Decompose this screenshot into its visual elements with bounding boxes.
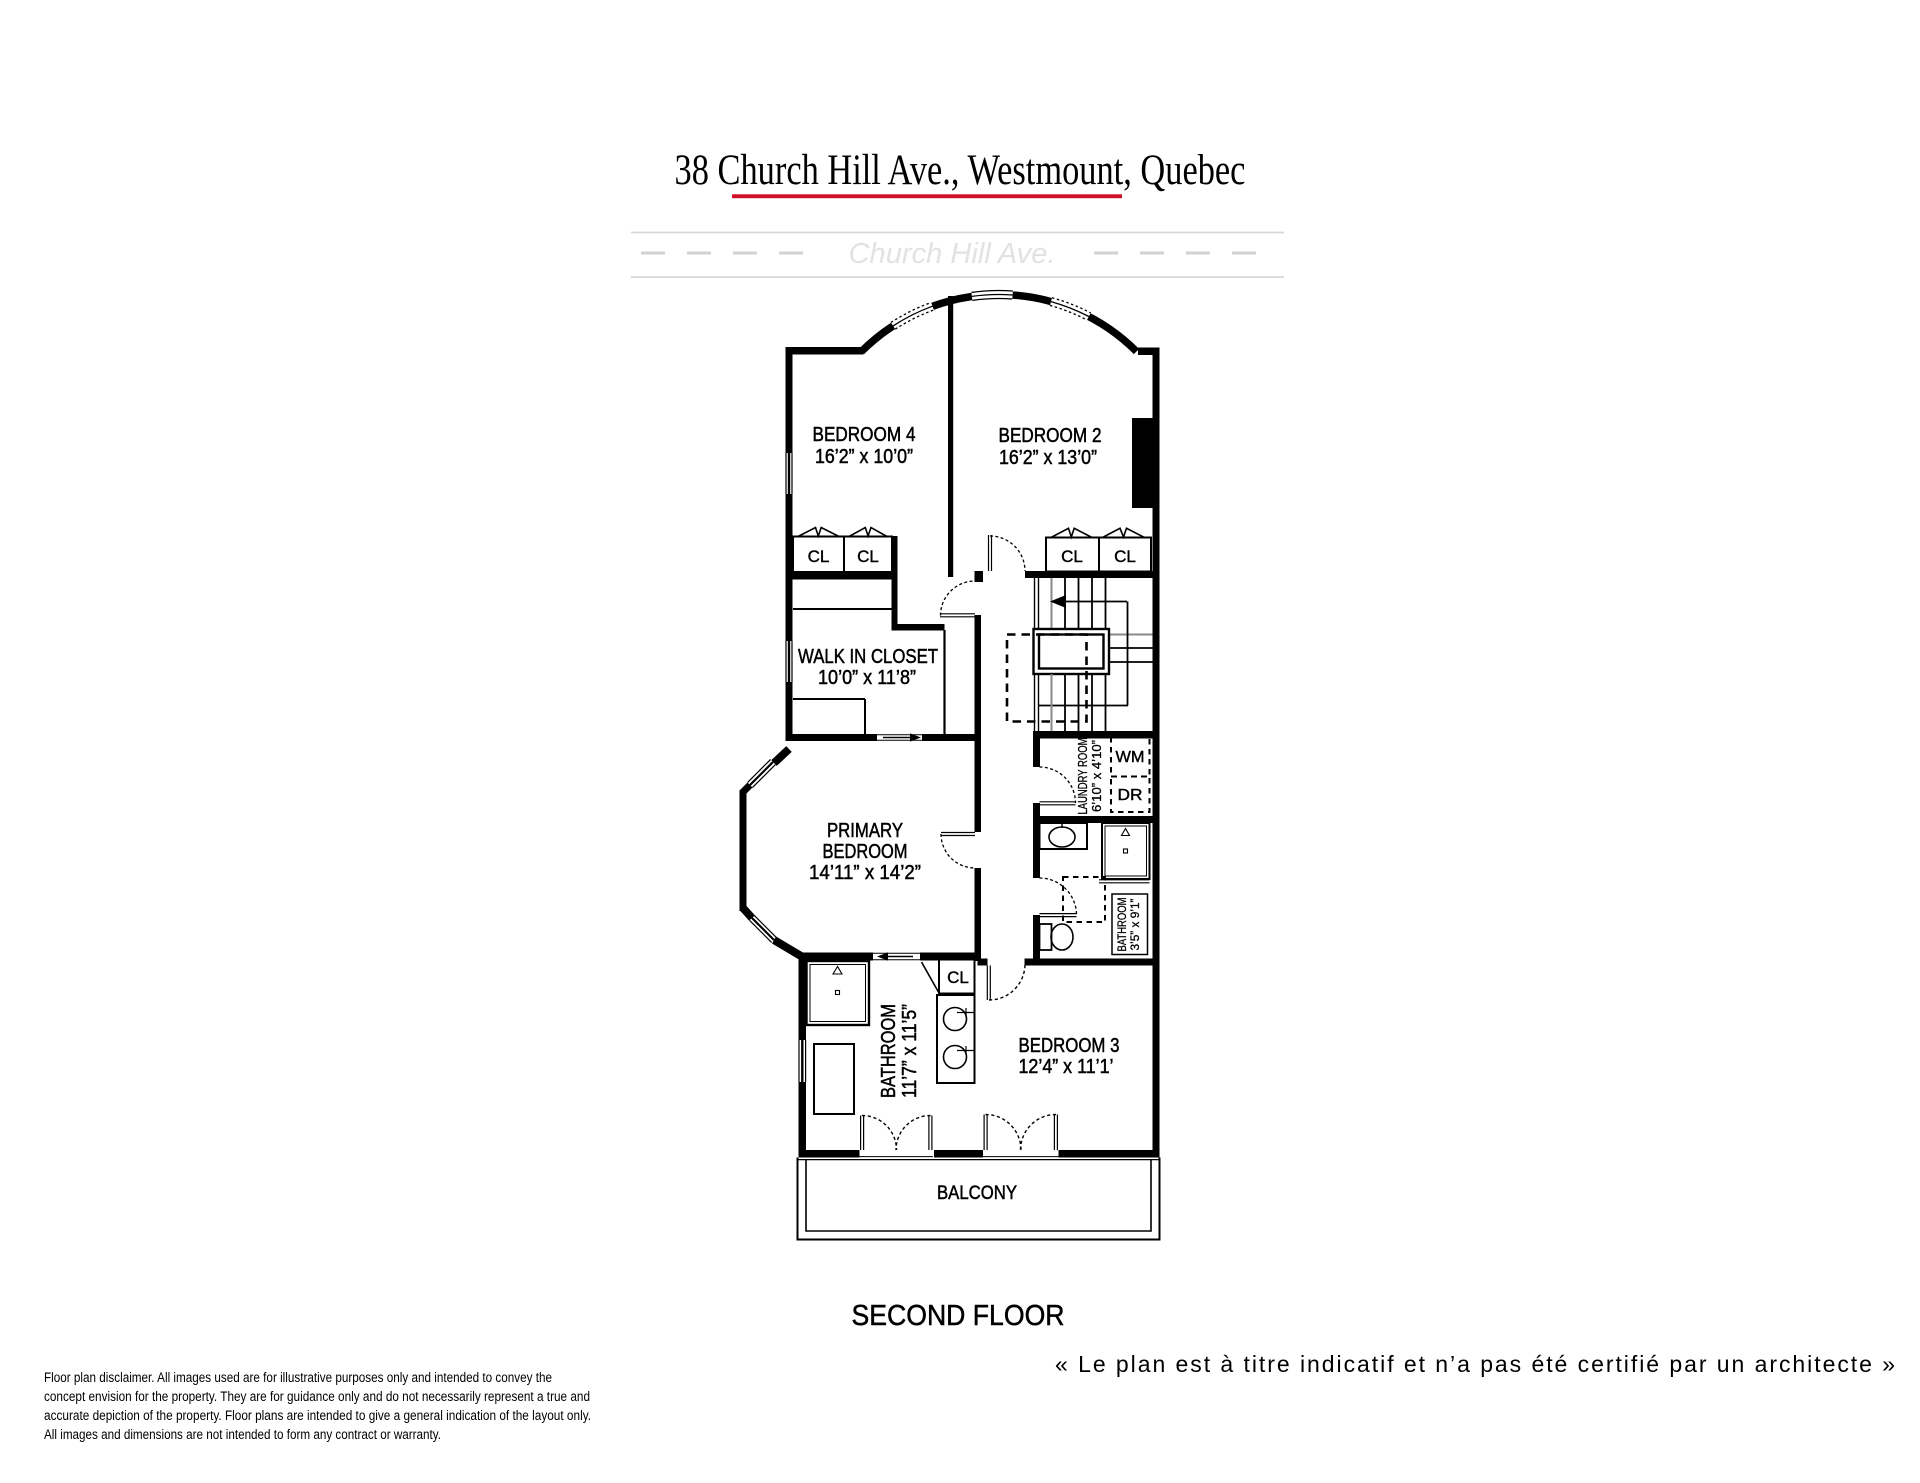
- svg-text:12’4” x 11’1’: 12’4” x 11’1’: [1019, 1056, 1114, 1078]
- svg-text:CL: CL: [808, 547, 830, 566]
- svg-text:16’2” x 13’0”: 16’2” x 13’0”: [999, 447, 1097, 469]
- svg-text:BATHROOM: BATHROOM: [1115, 898, 1129, 952]
- svg-text:CL: CL: [1114, 547, 1136, 566]
- svg-text:BALCONY: BALCONY: [937, 1183, 1017, 1204]
- svg-text:BEDROOM 3: BEDROOM 3: [1019, 1035, 1120, 1057]
- svg-text:All images and dimensions are: All images and dimensions are not intend…: [44, 1427, 441, 1442]
- svg-text:PRIMARY: PRIMARY: [827, 820, 903, 842]
- svg-text:11’7” x 11’5”: 11’7” x 11’5”: [899, 1004, 921, 1098]
- svg-text:BEDROOM 4: BEDROOM 4: [813, 424, 916, 446]
- svg-text:38 Church Hill Ave., Westmount: 38 Church Hill Ave., Westmount, Quebec: [675, 146, 1246, 193]
- svg-text:accurate depiction of the prop: accurate depiction of the property. Floo…: [44, 1408, 591, 1423]
- svg-text:DR: DR: [1118, 787, 1143, 804]
- svg-text:BEDROOM: BEDROOM: [823, 841, 908, 863]
- svg-text:3’5” x 9’1”: 3’5” x 9’1”: [1130, 898, 1142, 950]
- svg-text:CL: CL: [1061, 547, 1083, 566]
- svg-text:BEDROOM 2: BEDROOM 2: [999, 425, 1102, 447]
- svg-text:Church Hill Ave.: Church Hill Ave.: [849, 238, 1056, 270]
- svg-text:WALK IN CLOSET: WALK IN CLOSET: [798, 646, 938, 668]
- svg-text:CL: CL: [947, 968, 969, 987]
- svg-text:WM: WM: [1116, 749, 1145, 766]
- svg-text:LAUNDRY ROOM: LAUNDRY ROOM: [1075, 738, 1090, 815]
- svg-text:14’11” x 14’2”: 14’11” x 14’2”: [809, 862, 921, 884]
- svg-text:6’10” x 4’10”: 6’10” x 4’10”: [1090, 740, 1104, 812]
- svg-text:CL: CL: [857, 547, 879, 566]
- svg-text:10’0” x 11’8”: 10’0” x 11’8”: [818, 667, 916, 689]
- svg-text:concept envision for the prope: concept envision for the property. They …: [44, 1389, 590, 1404]
- svg-text:16’2” x 10’0”: 16’2” x 10’0”: [815, 446, 913, 468]
- svg-text:SECOND FLOOR: SECOND FLOOR: [852, 1300, 1065, 1332]
- svg-text:Floor plan disclaimer. All ima: Floor plan disclaimer. All images used a…: [44, 1370, 552, 1385]
- svg-text:« Le plan est à titre indicati: « Le plan est à titre indicatif et n’a p…: [1055, 1351, 1895, 1377]
- svg-text:BATHROOM: BATHROOM: [878, 1004, 900, 1098]
